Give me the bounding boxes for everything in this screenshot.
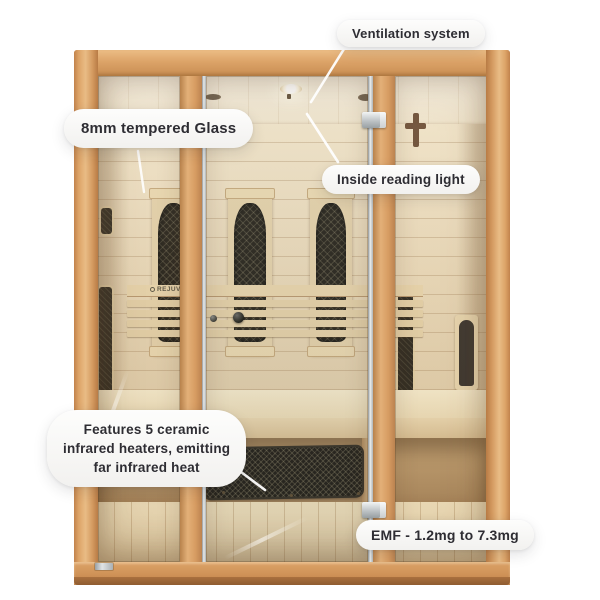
- side-heater-slot: [459, 320, 474, 386]
- callout-label: 8mm tempered Glass: [81, 120, 236, 137]
- frame-base-edge: [74, 577, 510, 585]
- reading-light-stem: [287, 94, 291, 99]
- side-heater-left: [101, 208, 112, 234]
- callout-label: Ventilation system: [352, 26, 470, 41]
- frame-right-post: [486, 50, 510, 585]
- door-hinge-top: [362, 112, 386, 128]
- door-handle-knob: [233, 312, 244, 323]
- frame-mullion-hinge-side: [373, 76, 395, 562]
- screw-dot: [290, 494, 293, 497]
- screw-dot: [222, 491, 225, 494]
- side-heater-cover: [455, 315, 478, 390]
- callout-label-line: Features 5 ceramic: [84, 420, 210, 439]
- heater-cap: [225, 346, 275, 357]
- rejuve-logo-mark-icon: [150, 287, 155, 292]
- reading-light-icon: [280, 84, 302, 94]
- heater-cap: [225, 188, 275, 199]
- wall-fixture: [413, 113, 419, 147]
- callout-label-line: infrared heaters, emitting: [63, 439, 230, 458]
- door-glass-edge: [202, 76, 206, 562]
- product-image: REJUVE: [0, 0, 600, 600]
- callout-label: EMF - 1.2mg to 7.3mg: [371, 527, 519, 543]
- door-hinge-bottom: [362, 502, 386, 518]
- heater-cap: [307, 346, 355, 357]
- callout-ceramic-heaters: Features 5 ceramic infrared heaters, emi…: [47, 410, 246, 487]
- ceiling-vent-icon: [205, 94, 221, 100]
- wall-fixture: [405, 123, 426, 129]
- base-metal-badge: [95, 563, 113, 570]
- callout-ventilation-system: Ventilation system: [337, 20, 485, 47]
- screw-dot: [357, 492, 360, 495]
- callout-label: Inside reading light: [337, 172, 465, 187]
- frame-top-beam: [74, 50, 510, 76]
- callout-emf: EMF - 1.2mg to 7.3mg: [356, 520, 534, 550]
- callout-tempered-glass: 8mm tempered Glass: [64, 109, 253, 148]
- sauna-interior: REJUVE: [98, 76, 488, 562]
- callout-reading-light: Inside reading light: [322, 165, 480, 194]
- callout-label-line: far infrared heat: [94, 458, 200, 477]
- door-latch: [210, 315, 217, 322]
- frame-mullion-left: [180, 76, 202, 562]
